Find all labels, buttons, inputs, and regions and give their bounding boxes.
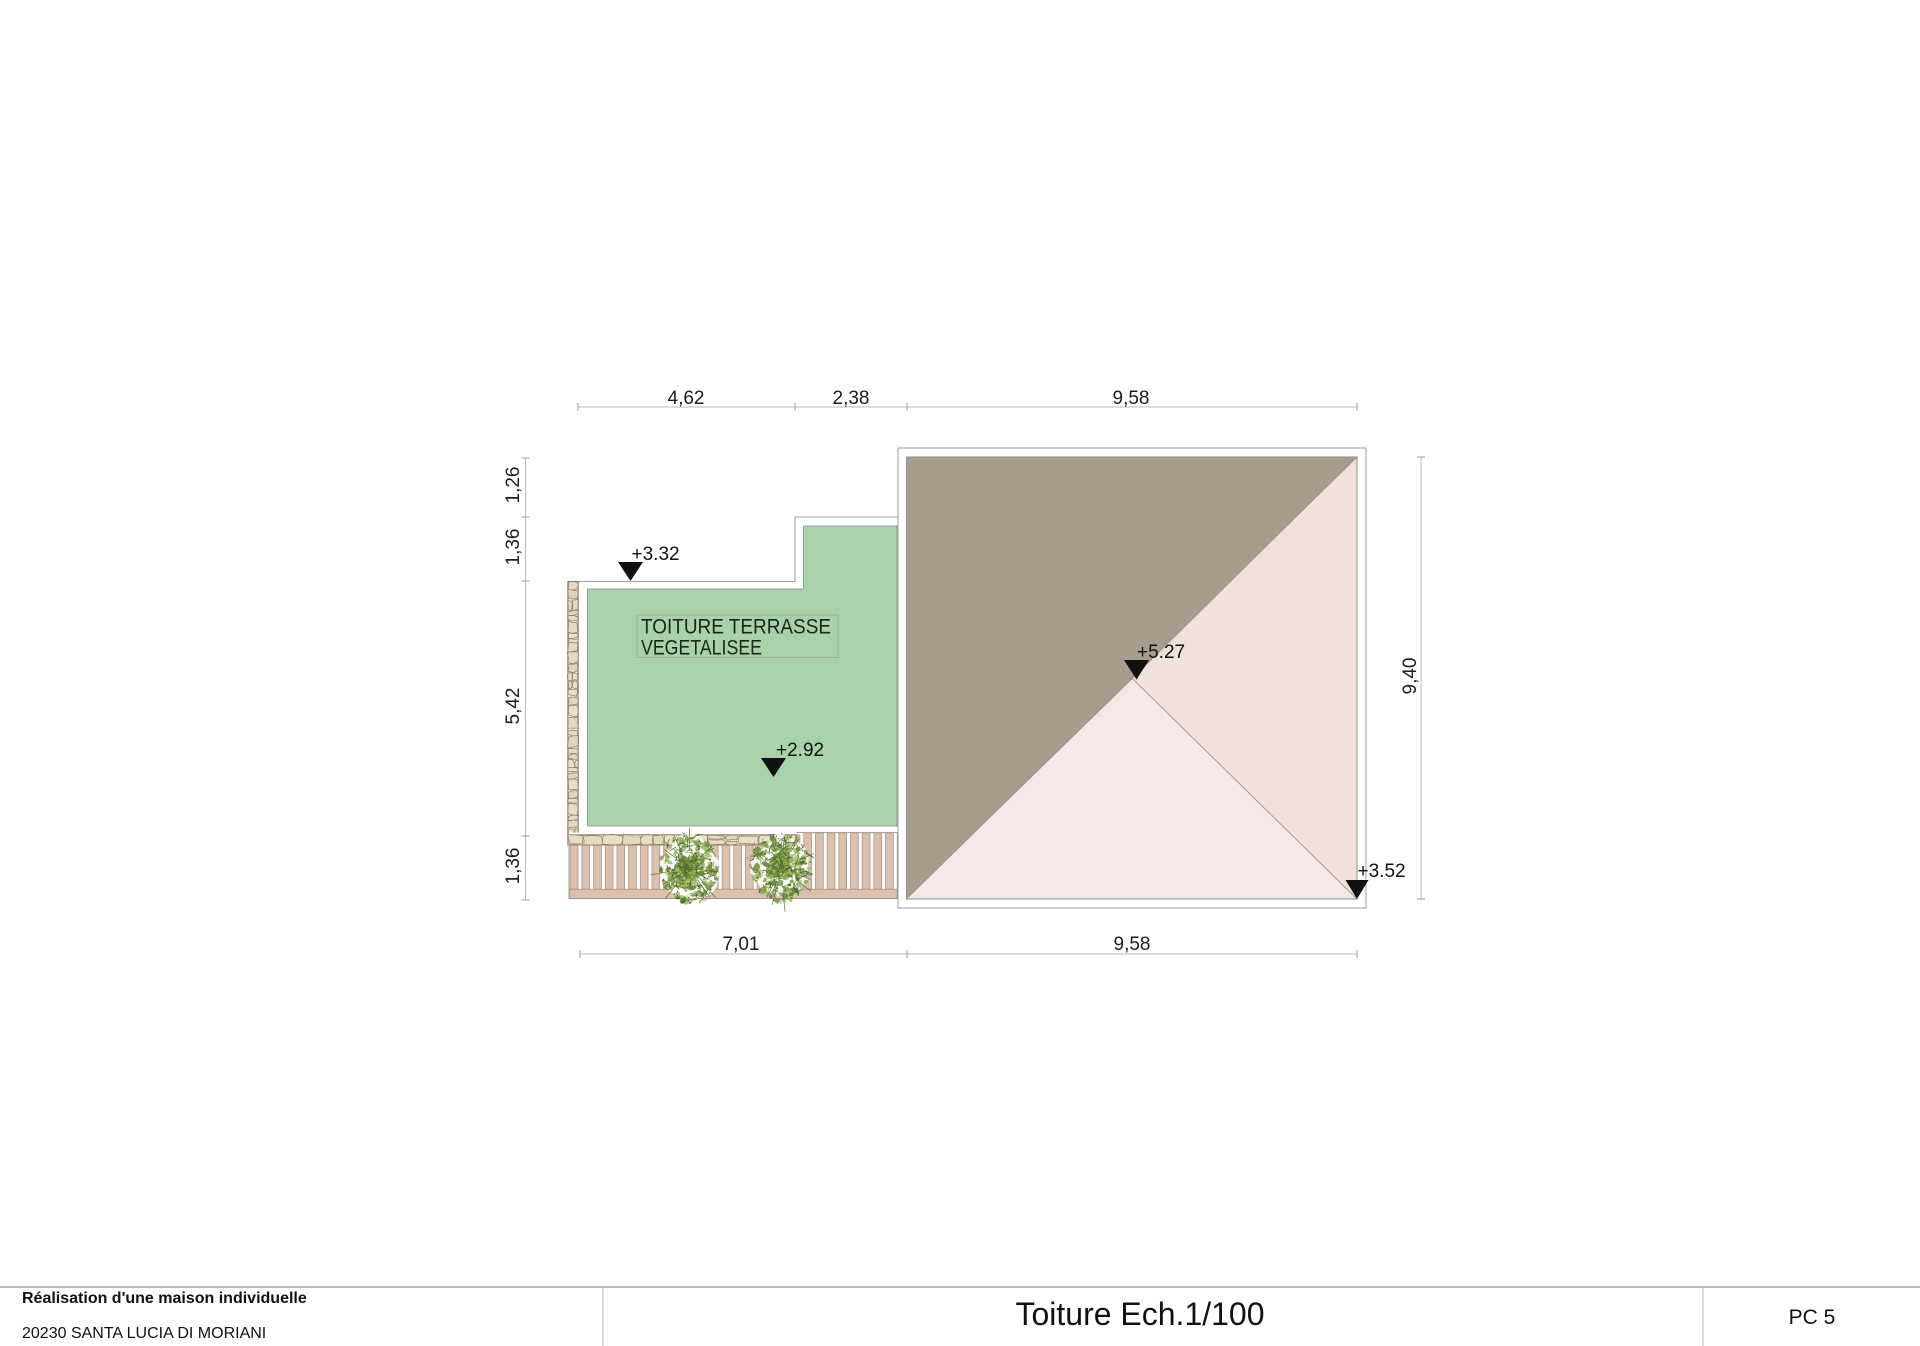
svg-text:+3.32: +3.32 <box>632 544 680 565</box>
svg-text:9,58: 9,58 <box>1113 388 1150 409</box>
svg-text:7,01: 7,01 <box>723 934 760 955</box>
svg-text:Toiture Ech.1/100: Toiture Ech.1/100 <box>1015 1296 1264 1332</box>
svg-text:20230 SANTA LUCIA DI MORIANI: 20230 SANTA LUCIA DI MORIANI <box>22 1325 266 1342</box>
svg-text:1,36: 1,36 <box>503 529 524 566</box>
svg-text:+3.52: +3.52 <box>1358 861 1406 882</box>
svg-text:4,62: 4,62 <box>668 388 705 409</box>
svg-text:VEGETALISEE: VEGETALISEE <box>641 637 762 660</box>
svg-text:2,38: 2,38 <box>833 388 870 409</box>
svg-text:+5.27: +5.27 <box>1137 642 1185 663</box>
svg-text:1,26: 1,26 <box>503 467 524 504</box>
svg-text:PC 5: PC 5 <box>1789 1306 1836 1329</box>
svg-text:5,42: 5,42 <box>503 688 524 725</box>
svg-text:Réalisation d'une maison indiv: Réalisation d'une maison individuelle <box>22 1290 307 1307</box>
svg-text:9,40: 9,40 <box>1400 658 1421 695</box>
svg-text:TOITURE TERRASSE: TOITURE TERRASSE <box>641 616 831 639</box>
svg-text:9,58: 9,58 <box>1114 934 1151 955</box>
svg-text:1,36: 1,36 <box>503 848 524 885</box>
svg-text:+2.92: +2.92 <box>776 740 824 761</box>
